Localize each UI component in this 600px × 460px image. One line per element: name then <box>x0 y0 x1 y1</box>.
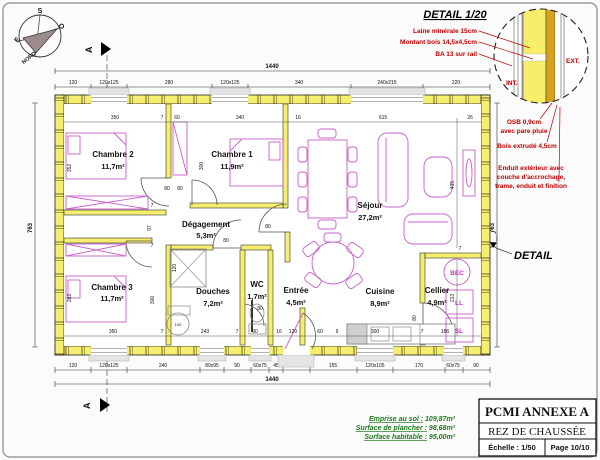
detail-title: DETAIL 1/20 <box>423 9 487 21</box>
room-cuisine-area: 8,9m² <box>370 299 390 308</box>
room-chambre2-area: 11,7m² <box>101 162 125 171</box>
compass-north-label: NORD <box>21 51 37 66</box>
room-cuisine-name: Cuisine <box>366 287 395 296</box>
dim-top-5: 240x215 <box>377 80 396 86</box>
dim-ibot-5: 16 <box>276 329 282 335</box>
dim-itop-5: 615 <box>379 115 388 121</box>
surface-emprise: Emprise au sol : 109,87m² <box>369 416 456 423</box>
annotation-enduit-2: couche d'accrochage, <box>497 174 565 181</box>
dim-bot-8: 155 <box>329 363 338 369</box>
dim-bot-11: 60x75 <box>446 363 460 369</box>
room-degagement-area: 5,3m² <box>196 231 216 240</box>
room-chambre1-area: 11,9m² <box>220 162 244 171</box>
dim-v-97: 97 <box>147 225 153 231</box>
annotation-bois: Bois extrudé 4,5cm <box>497 143 557 150</box>
room-chambre1-name: Chambre 1 <box>211 150 253 159</box>
door-label-80-d: 80 <box>223 238 229 244</box>
titleblock-page: Page 10/10 <box>551 443 590 452</box>
dryer-label: SL <box>455 328 463 335</box>
dim-v-7a: 7 <box>151 203 154 209</box>
kitchen-counter <box>347 324 455 344</box>
room-wc-area: 1,7m² <box>247 292 267 301</box>
dim-v-300b: 300 <box>150 296 156 305</box>
dim-top-3: 120x125 <box>220 80 239 86</box>
dim-bot-10: 170 <box>415 363 424 369</box>
room-wc-name: WC <box>250 280 264 289</box>
dim-bot-12: 90 <box>473 363 479 369</box>
detail-ext-label: EXT. <box>566 58 580 65</box>
dim-ibot-11: 186 <box>441 329 450 335</box>
surface-plancher: Surface de plancher : 98,68m² <box>356 425 456 432</box>
dim-itop-6: 26 <box>467 115 473 121</box>
detail-callout-label: DETAIL <box>514 250 553 262</box>
section-marker-a-top: A <box>84 46 94 53</box>
dim-v-ch3: 282 <box>67 294 73 303</box>
annotation-laine: Laine minérale 15cm <box>413 28 477 35</box>
shower-size-label: 120 <box>172 264 178 273</box>
annotation-enduit-3: trame, enduit et finition <box>495 183 567 190</box>
room-sejour-name: Séjour <box>358 201 383 210</box>
dim-ibot-8: 9 <box>336 329 339 335</box>
dim-ibot-0: 350 <box>109 329 118 335</box>
dim-v-cellier: 213 <box>450 294 456 303</box>
dim-top-6: 220 <box>452 80 461 86</box>
compass-east-label: E <box>14 36 23 44</box>
detail-int-label: INT. <box>506 80 518 87</box>
compass-rose-icon: S O E NORD <box>14 8 66 66</box>
dim-bot-5: 60x75 <box>253 363 267 369</box>
room-chambre3-name: Chambre 3 <box>91 283 133 292</box>
dim-ibot-4: 90 <box>252 329 258 335</box>
compass-west-label: O <box>57 22 66 31</box>
door-label-80-c: 80 <box>265 224 271 230</box>
room-chambre3-area: 11,7m² <box>100 294 124 303</box>
titleblock-title: PCMI ANNEXE A <box>485 404 590 419</box>
surface-habitable: Surface habitable : 95,00m² <box>364 434 455 441</box>
dim-bot-3: 80x95 <box>205 363 219 369</box>
washing-machine-label: LL <box>455 300 463 307</box>
basin-size-label: 100 <box>175 322 182 327</box>
dim-ibot-10: 7 <box>421 329 424 335</box>
titleblock-scale: Échelle : 1/50 <box>488 443 536 452</box>
dim-bot-4: 90 <box>234 363 240 369</box>
dim-itop-3: 340 <box>236 115 245 121</box>
room-cellier-name: Cellier <box>425 286 449 295</box>
dim-top-1: 120x125 <box>99 80 118 86</box>
dim-v-7b: 7 <box>151 243 154 249</box>
annotation-enduit-1: Enduit extérieur avec <box>498 165 564 172</box>
annotation-osb-2: avec pare pluie <box>501 128 548 135</box>
dim-ibot-1: 7 <box>161 329 164 335</box>
dim-bot-9: 120x105 <box>365 363 384 369</box>
room-degagement-name: Dégagement <box>182 220 230 229</box>
dim-itop-0: 350 <box>111 115 120 121</box>
dim-top-4: 340 <box>295 80 304 86</box>
room-douches-area: 7,2m² <box>203 299 223 308</box>
room-cellier-area: 4,9m² <box>427 298 447 307</box>
dim-itop-4: 16 <box>295 115 301 121</box>
dim-v-ch2: 352 <box>67 164 73 173</box>
dim-top-0: 120 <box>69 80 78 86</box>
floor-plan-drawing: S O E NORD A A DETAIL 1/20 INT. EXT. <box>0 0 600 460</box>
dim-itop-2: 60 <box>174 115 180 121</box>
door-label-80-b: 80 <box>177 186 183 192</box>
dim-bot-2: 240 <box>159 363 168 369</box>
floor-plan-sheet: S O E NORD A A DETAIL 1/20 INT. EXT. <box>0 0 600 460</box>
room-entree-area: 4,5m² <box>286 298 306 307</box>
annotation-ba13: BA 13 sur rail <box>435 51 477 58</box>
room-sejour-area: 27,2m² <box>358 213 382 222</box>
dim-total-width-top: 1440 <box>265 64 279 70</box>
wall-detail-circle: INT. EXT. <box>493 8 591 105</box>
dim-total-height-left: 763 <box>28 222 34 233</box>
dim-top-2: 280 <box>165 80 174 86</box>
dim-ibot-7: 60 <box>317 329 323 335</box>
dim-v-7c: 7 <box>459 246 462 252</box>
door-label-80-a: 80 <box>164 186 170 192</box>
dim-v-sejour: 435 <box>450 181 456 190</box>
door-label-80-e: 80 <box>257 306 263 312</box>
dim-itop-1: 7 <box>161 115 164 121</box>
dim-ibot-9: 300 <box>371 329 380 335</box>
compass-south-label: S <box>38 8 43 15</box>
dim-ibot-6: 120 <box>289 329 298 335</box>
dim-bot-1: 120x125 <box>99 363 118 369</box>
annotation-osb-1: OSB 0,9cm <box>507 119 542 126</box>
door-label-80-f: 80 <box>412 315 418 321</box>
room-douches-name: Douches <box>196 287 230 296</box>
dim-ibot-3: 7 <box>236 329 239 335</box>
room-chambre2-name: Chambre 2 <box>92 150 134 159</box>
dim-v-300a: 300 <box>199 162 205 171</box>
dim-bot-0: 120 <box>69 363 78 369</box>
room-entree-name: Entrée <box>284 286 309 295</box>
dim-total-width-bottom: 1440 <box>265 377 279 383</box>
surface-summary: Emprise au sol : 109,87m² Surface de pla… <box>356 416 456 441</box>
dim-ibot-2: 243 <box>201 329 210 335</box>
titleblock-subtitle: REZ DE CHAUSSÉE <box>488 426 586 438</box>
title-block: PCMI ANNEXE A REZ DE CHAUSSÉE Échelle : … <box>479 399 596 456</box>
section-marker-a-bottom: A <box>82 402 92 409</box>
annotation-montant: Montant bois 14,5x4,5cm <box>400 39 477 46</box>
dim-total-height-right: 763 <box>490 222 496 233</box>
